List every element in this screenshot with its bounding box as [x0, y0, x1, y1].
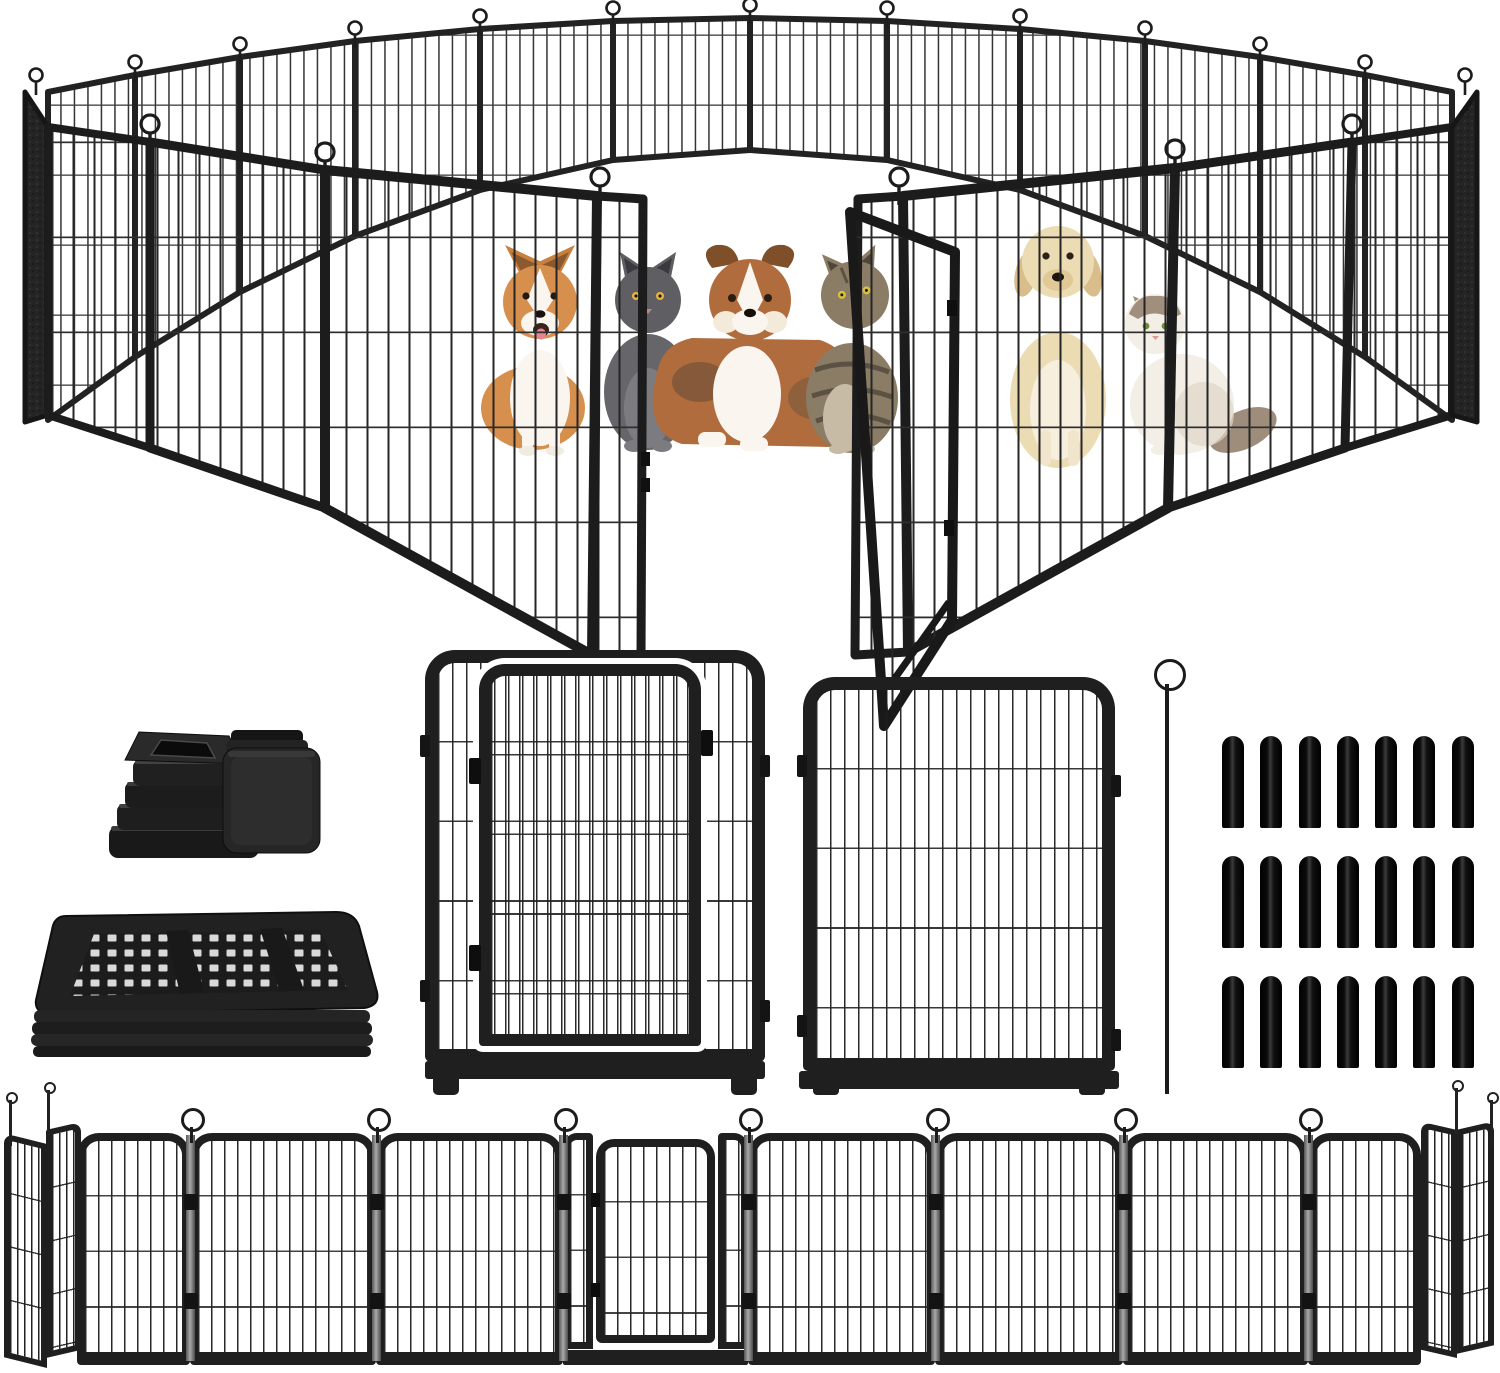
spike-cap [1413, 856, 1435, 948]
folded-panel [4, 1133, 47, 1368]
spike-cap [1337, 976, 1359, 1068]
edge-slab-right [1452, 92, 1477, 422]
gate-bottom-bar [563, 1350, 748, 1365]
spike-cap [1260, 856, 1282, 948]
foot [433, 1077, 459, 1095]
loop-pin-icon [926, 1108, 950, 1132]
spike-cap [1299, 976, 1321, 1068]
gate-panel [563, 1133, 748, 1365]
fence-panel [190, 1133, 376, 1365]
spike-cap [1375, 856, 1397, 948]
spike-cap [1222, 976, 1244, 1068]
spike-cap [1299, 856, 1321, 948]
spike-cap [1260, 736, 1282, 828]
latch [701, 730, 713, 756]
gate-latch [641, 452, 650, 466]
loop-pin-icon [1114, 1108, 1138, 1132]
playpen-ring-scene [0, 0, 1500, 745]
fence-panel [1123, 1133, 1308, 1365]
junction-post [186, 1135, 195, 1361]
loop-pin-icon [9, 1100, 12, 1146]
door-panel-product [425, 650, 765, 1095]
fence-panel [48, 127, 150, 448]
folded-panel [1456, 1121, 1494, 1354]
stake-loop-icon [1154, 659, 1186, 691]
spike-cap [1222, 856, 1244, 948]
spike-cap [1375, 736, 1397, 828]
spike-cap [1337, 856, 1359, 948]
junction-post [1304, 1135, 1313, 1361]
gate-door [596, 1139, 715, 1343]
spike-cap [1413, 736, 1435, 828]
foot [1079, 1083, 1105, 1095]
foot [813, 1083, 839, 1095]
fence-panel-frame [803, 677, 1115, 1071]
door-panel-bottom-bar [425, 1061, 765, 1079]
loop-pin-icon [554, 1108, 578, 1132]
stack-side-bars [31, 1010, 373, 1057]
spike-cap [1260, 976, 1282, 1068]
fence-panel [150, 142, 325, 508]
folded-panel [46, 1122, 81, 1358]
door-panel-gate [479, 664, 701, 1046]
bottom-panel-row [0, 1100, 1500, 1373]
connector-clip [797, 1015, 807, 1037]
stack-grid-face [70, 930, 348, 996]
gate-post-left [594, 196, 643, 658]
connector-clip [760, 1000, 770, 1022]
fence-panel [935, 1133, 1123, 1365]
foot [731, 1077, 757, 1095]
spike-caps-grid [1222, 736, 1474, 1068]
spike-cap [1452, 976, 1474, 1068]
spike-cap [1452, 856, 1474, 948]
folded-panel [1421, 1122, 1457, 1358]
loop-pin-icon [47, 1090, 50, 1136]
ground-stake [1145, 655, 1205, 1100]
fence-panel [613, 18, 750, 160]
loop-pin-icon [739, 1108, 763, 1132]
loop-pin-icon [1299, 1108, 1323, 1132]
loop-pin-icon [1490, 1100, 1493, 1146]
junction-post [744, 1135, 753, 1361]
spike-cap [1337, 736, 1359, 828]
connector-clip [420, 980, 430, 1002]
hinge [469, 945, 481, 971]
loop-pin-icon [1455, 1088, 1458, 1134]
connector-clip [760, 755, 770, 777]
hinge [591, 1193, 600, 1207]
connector-clip [797, 755, 807, 777]
loop-pin-icon [181, 1108, 205, 1132]
fence-panel [376, 1133, 563, 1365]
fence-panel-product [803, 677, 1115, 1095]
gate-latch [641, 478, 650, 492]
hinge [591, 1283, 600, 1297]
spike-cap [1452, 736, 1474, 828]
product-image-canvas [0, 0, 1500, 1373]
hinge [469, 758, 481, 784]
fence-panel [748, 1133, 935, 1365]
smooth-square-cap [223, 730, 320, 853]
folded-panel-stack [18, 900, 383, 1062]
tube-caps [95, 718, 330, 868]
fence-panel [480, 21, 613, 190]
connector-clip [1111, 1029, 1121, 1051]
spike-cap [1413, 976, 1435, 1068]
fence-panel [1345, 127, 1452, 448]
spike-cap [1222, 736, 1244, 828]
junction-post [559, 1135, 568, 1361]
spike-cap [1375, 976, 1397, 1068]
stake-rod [1165, 684, 1169, 1094]
fence-panel-bottom-bar [799, 1071, 1119, 1089]
spike-cap [1299, 736, 1321, 828]
loop-pin-icon [367, 1108, 391, 1132]
fence-panel [325, 170, 597, 655]
fence-panel [750, 18, 887, 160]
junction-post [1119, 1135, 1128, 1361]
fence-panel [77, 1133, 190, 1365]
connector-clip [1111, 775, 1121, 797]
fence-panel [1168, 142, 1352, 508]
junction-post [372, 1135, 381, 1361]
connector-clip [420, 735, 430, 757]
junction-post [931, 1135, 940, 1361]
fence-panel [1308, 1133, 1421, 1365]
fence-panel [887, 21, 1020, 190]
